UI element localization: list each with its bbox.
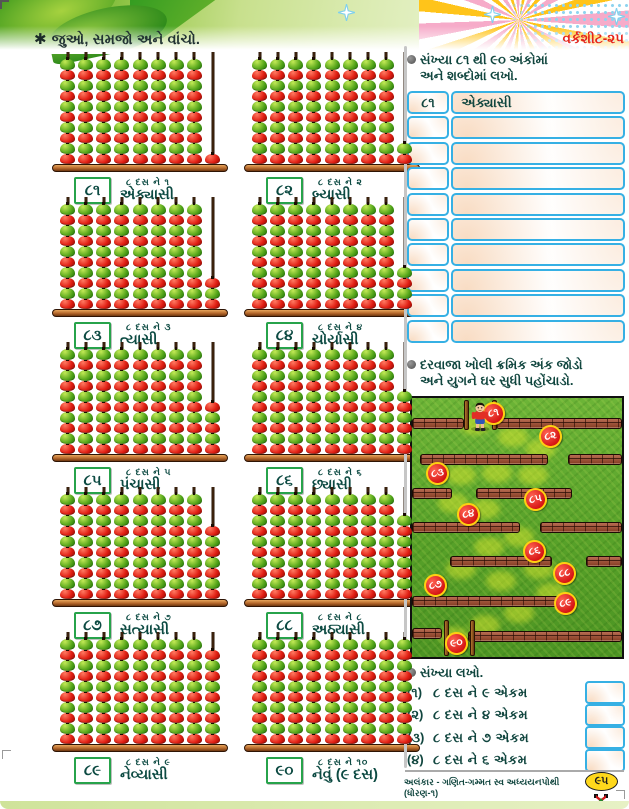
apple-bead-icon [288,360,303,371]
apple-bead-icon [379,80,394,91]
panel-numeral-box: ૮૭ [74,612,111,639]
apple-bead-icon [151,660,166,671]
apple-bead-icon [288,246,303,257]
apple-bead-icon [361,671,376,682]
apple-bead-icon [288,547,303,558]
apple-bead-icon [133,381,148,392]
apple-bead-icon [114,639,129,650]
apple-bead-icon [379,225,394,236]
table-word-cell[interactable] [451,218,625,241]
apple-bead-icon [288,101,303,112]
apple-bead-icon [169,681,184,692]
apple-bead-icon [270,370,285,381]
apple-bead-icon [133,671,148,682]
apple-bead-icon [96,650,111,661]
abacus-rod-tens [169,349,184,454]
apple-bead-icon [151,494,166,505]
apple-bead-icon [60,59,75,70]
apple-bead-icon [60,515,75,526]
abacus-rod-units [205,59,220,164]
table-number-cell[interactable] [407,193,449,216]
apple-bead-icon [114,278,129,289]
apple-bead-icon [205,723,220,734]
apple-bead-icon [288,122,303,133]
apple-bead-icon [60,589,75,600]
table-word-cell[interactable] [451,167,625,190]
apple-bead-icon [343,391,358,402]
apple-bead-icon [114,370,129,381]
apple-bead-icon [288,59,303,70]
apple-bead-icon [325,589,340,600]
apple-bead-icon [78,122,93,133]
apple-bead-icon [288,723,303,734]
apple-bead-icon [325,515,340,526]
abacus-base [52,599,228,607]
apple-bead-icon [187,204,202,215]
table-number-cell[interactable] [407,269,449,292]
apple-bead-icon [397,734,412,745]
apple-bead-icon [151,122,166,133]
apple-bead-icon [361,360,376,371]
apple-bead-icon [288,370,303,381]
apple-bead-icon [270,59,285,70]
apple-bead-icon [270,246,285,257]
apple-bead-icon [343,702,358,713]
apple-bead-icon [96,423,111,434]
apple-bead-icon [78,578,93,589]
apple-bead-icon [397,444,412,455]
table-number-cell[interactable] [407,167,449,190]
panel-numeral-box: ૮૩ [74,322,111,349]
apple-bead-icon [133,692,148,703]
bullet-icon [407,360,416,369]
apple-bead-icon [60,370,75,381]
apple-bead-icon [133,299,148,310]
write-numbers-items: (૧)૮ દસ ને ૯ એકમ(૨)૮ દસ ને ૪ એકમ(૩)૮ દસ … [407,682,625,772]
apple-bead-icon [151,391,166,402]
abacus-rod-tens [60,639,75,744]
panel-numeral-box: ૮૬ [266,467,303,494]
apple-bead-icon [60,639,75,650]
apple-bead-icon [379,143,394,154]
apple-bead-icon [60,494,75,505]
apple-bead-icon [270,267,285,278]
brick-wall [540,522,622,533]
apple-bead-icon [78,204,93,215]
apple-bead-icon [187,402,202,413]
brick-wall [468,631,622,642]
apple-bead-icon [96,671,111,682]
apple-bead-icon [379,568,394,579]
apple-bead-icon [187,505,202,516]
apple-bead-icon [78,702,93,713]
apple-bead-icon [96,70,111,81]
abacus-rod-tens [133,494,148,599]
abacus-beads [252,494,412,599]
write-number-item: (૩)૮ દસ ને ૭ એકમ [407,727,625,748]
abacus-rod-tens [270,59,285,164]
apple-bead-icon [325,215,340,226]
table-word-cell[interactable] [451,294,625,317]
panel-numeral-box: ૯૦ [266,757,303,784]
apple-bead-icon [187,692,202,703]
apple-bead-icon [78,671,93,682]
apple-bead-icon [343,122,358,133]
prompt-line: સંખ્યા લખો. [420,665,483,680]
apple-bead-icon [252,112,267,123]
apple-bead-icon [343,70,358,81]
apple-bead-icon [114,143,129,154]
apple-bead-icon [306,360,321,371]
abacus-base [244,164,420,172]
table-word-cell[interactable] [451,243,625,266]
apple-bead-icon [169,154,184,165]
apple-bead-icon [96,723,111,734]
apple-bead-icon [114,257,129,268]
apple-bead-icon [252,215,267,226]
apple-bead-icon [270,236,285,247]
abacus-beads [60,349,220,454]
apple-bead-icon [60,225,75,236]
apple-bead-icon [133,122,148,133]
apple-bead-icon [306,80,321,91]
apple-bead-icon [169,402,184,413]
abacus-beads [60,639,220,744]
apple-bead-icon [306,713,321,724]
apple-bead-icon [78,133,93,144]
apple-bead-icon [187,713,202,724]
apple-bead-icon [151,360,166,371]
apple-bead-icon [270,91,285,102]
apple-bead-icon [361,80,376,91]
apple-bead-icon [306,267,321,278]
apple-bead-icon [379,589,394,600]
apple-bead-icon [343,59,358,70]
apple-bead-icon [379,505,394,516]
apple-bead-icon [379,204,394,215]
apple-bead-icon [114,225,129,236]
apple-bead-icon [60,734,75,745]
apple-bead-icon [133,568,148,579]
apple-bead-icon [306,288,321,299]
apple-bead-icon [114,101,129,112]
apple-bead-icon [60,547,75,558]
apple-bead-icon [133,143,148,154]
apple-bead-icon [114,505,129,516]
answer-box[interactable] [585,681,625,704]
table-word-cell: એક્યાસી [451,91,625,114]
abacus-panel: ૮૭૮ દસ ને ૭સત્યાસી [30,492,222,637]
apple-bead-icon [252,723,267,734]
apple-bead-icon [325,536,340,547]
apple-bead-icon [133,59,148,70]
apple-bead-icon [114,133,129,144]
apple-bead-icon [325,660,340,671]
maze-board[interactable]: ૮૧૮૨૮૩૮૫૮૪૮૬૮૮૮૭૮૯૯૦ [410,396,624,659]
apple-bead-icon [270,215,285,226]
apple-bead-icon [169,349,184,360]
apple-bead-icon [96,204,111,215]
abacus-beads [60,494,220,599]
apple-bead-icon [187,515,202,526]
abacus-rod-tens [379,639,394,744]
maze-prompt: દરવાજા ખોલી ક્રમિક અંક જોડો અને યુગને ઘર… [407,357,627,390]
abacus-beads [252,639,412,744]
apple-bead-icon [306,494,321,505]
apple-bead-icon [270,225,285,236]
apple-bead-icon [114,557,129,568]
apple-bead-icon [169,246,184,257]
table-number-cell[interactable] [407,320,449,343]
apple-bead-icon [78,299,93,310]
abacus-rod-tens [114,494,129,599]
apple-bead-icon [169,536,184,547]
apple-bead-icon [343,526,358,537]
apple-bead-icon [343,557,358,568]
apple-bead-icon [252,526,267,537]
apple-bead-icon [270,122,285,133]
abacus-rod-units [205,639,220,744]
table-number-cell: ૮૧ [407,91,449,114]
apple-bead-icon [133,349,148,360]
apple-bead-icon [60,349,75,360]
apple-bead-icon [288,288,303,299]
apple-bead-icon [397,299,412,310]
apple-bead-icon [306,143,321,154]
apple-bead-icon [270,349,285,360]
apple-bead-icon [114,671,129,682]
apple-bead-icon [270,568,285,579]
apple-bead-icon [379,59,394,70]
apple-bead-icon [78,723,93,734]
apple-bead-icon [361,557,376,568]
apple-bead-icon [361,101,376,112]
apple-bead-icon [325,381,340,392]
apple-bead-icon [325,246,340,257]
apple-bead-icon [205,526,220,537]
apple-bead-icon [187,547,202,558]
panel-label: ૯૦૮ દસ ને ૧૦નેવું (૯ દસ) [266,757,378,784]
apple-bead-icon [361,391,376,402]
apple-bead-icon [96,360,111,371]
apple-bead-icon [343,154,358,165]
apple-bead-icon [252,236,267,247]
apple-bead-icon [78,515,93,526]
apple-bead-icon [325,568,340,579]
table-number-cell[interactable] [407,116,449,139]
apple-bead-icon [78,547,93,558]
answer-box[interactable] [585,704,625,727]
apple-bead-icon [78,70,93,81]
table-word-cell[interactable] [451,269,625,292]
apple-bead-icon [288,91,303,102]
apple-bead-icon [270,112,285,123]
maze-path [486,571,516,591]
table-number-cell[interactable] [407,142,449,165]
apple-bead-icon [288,257,303,268]
apple-bead-icon [379,267,394,278]
table-number-cell[interactable] [407,218,449,241]
apple-bead-icon [96,692,111,703]
apple-bead-icon [361,154,376,165]
apple-bead-icon [361,433,376,444]
apple-bead-icon [187,80,202,91]
apple-bead-icon [151,143,166,154]
apple-bead-icon [270,713,285,724]
table-number-cell[interactable] [407,294,449,317]
apple-bead-icon [343,370,358,381]
apple-bead-icon [114,515,129,526]
apple-bead-icon [270,681,285,692]
table-row [407,243,625,266]
apple-bead-icon [252,734,267,745]
answer-box[interactable] [585,726,625,749]
abacus-rod-tens [187,639,202,744]
apple-bead-icon [270,288,285,299]
apple-bead-icon [306,412,321,423]
apple-bead-icon [379,246,394,257]
table-word-cell[interactable] [451,116,625,139]
apple-bead-icon [60,299,75,310]
panel-numeral-box: ૮૮ [266,612,303,639]
apple-bead-icon [343,412,358,423]
apple-bead-icon [133,288,148,299]
apple-bead-icon [60,681,75,692]
apple-bead-icon [325,112,340,123]
apple-bead-icon [343,444,358,455]
apple-bead-icon [151,671,166,682]
abacus-rod-tens [114,349,129,454]
prompt-line: અને શબ્દોમાં લખો. [407,68,627,84]
apple-bead-icon [288,639,303,650]
apple-bead-icon [78,91,93,102]
apple-bead-icon [78,505,93,516]
apple-bead-icon [270,692,285,703]
apple-bead-icon [114,112,129,123]
apple-bead-icon [288,204,303,215]
apple-bead-icon [187,681,202,692]
apple-bead-icon [187,723,202,734]
apple-bead-icon [361,112,376,123]
apple-bead-icon [96,444,111,455]
write-numbers-prompt: સંખ્યા લખો. [407,665,627,681]
apple-bead-icon [169,423,184,434]
abacus-rod-tens [151,639,166,744]
apple-bead-icon [205,557,220,568]
apple-bead-icon [151,526,166,537]
apple-bead-icon [60,713,75,724]
abacus-rod-tens [343,494,358,599]
table-word-cell[interactable] [451,142,625,165]
apple-bead-icon [133,444,148,455]
apple-bead-icon [379,215,394,226]
apple-bead-icon [306,402,321,413]
apple-bead-icon [361,402,376,413]
apple-bead-icon [60,91,75,102]
apple-bead-icon [60,257,75,268]
brick-wall [412,418,464,429]
apple-bead-icon [133,505,148,516]
apple-bead-icon [288,278,303,289]
apple-bead-icon [133,267,148,278]
abacus-rod-tens [325,204,340,309]
abacus-rod-tens [96,639,111,744]
apple-bead-icon [205,713,220,724]
table-word-cell[interactable] [451,193,625,216]
table-row [407,320,625,343]
apple-bead-icon [114,713,129,724]
apple-bead-icon [325,80,340,91]
apple-bead-icon [60,702,75,713]
apple-bead-icon [187,444,202,455]
apple-bead-icon [325,526,340,537]
apple-bead-icon [114,402,129,413]
apple-bead-icon [306,278,321,289]
apple-bead-icon [397,578,412,589]
apple-bead-icon [151,112,166,123]
abacus-rod-tens [361,59,376,164]
table-word-cell[interactable] [451,320,625,343]
table-number-cell[interactable] [407,243,449,266]
apple-bead-icon [288,412,303,423]
apple-bead-icon [306,723,321,734]
apple-bead-icon [252,412,267,423]
apple-bead-icon [96,215,111,226]
apple-bead-icon [343,246,358,257]
apple-bead-icon [78,246,93,257]
abacus-rod-tens [288,204,303,309]
apple-bead-icon [78,257,93,268]
prompt-line: દરવાજા ખોલી ક્રમિક અંક જોડો [420,357,583,372]
apple-bead-icon [114,122,129,133]
apple-bead-icon [60,236,75,247]
answer-box[interactable] [585,749,625,772]
apple-bead-icon [306,660,321,671]
apple-bead-icon [270,557,285,568]
apple-bead-icon [361,681,376,692]
page-title: ✱જુઓ, સમજો અને વાંચો. [34,30,200,48]
abacus-rod-tens [78,494,93,599]
asterisk-icon: ✱ [34,31,47,48]
apple-bead-icon [270,734,285,745]
table-row [407,167,625,190]
abacus-panels: ૮૧૮ દસ ને ૧એક્યાસી૮૨૮ દસ ને ૨બ્યાસી૮૩૮ દ… [30,57,414,782]
apple-bead-icon [151,578,166,589]
panel-text: ૮ દસ ને ૧એક્યાસી [120,177,174,204]
apple-bead-icon [96,734,111,745]
apple-bead-icon [169,70,184,81]
apple-bead-icon [96,225,111,236]
apple-bead-icon [325,154,340,165]
apple-bead-icon [379,370,394,381]
apple-bead-icon [252,360,267,371]
write-words-prompt: સંખ્યા ૮૧ થી ૯૦ અંકોમાં અને શબ્દોમાં લખો… [407,52,627,85]
apple-bead-icon [96,299,111,310]
prompt-line: અને યુગને ઘર સુધી પહોંચાડો. [407,373,627,389]
apple-bead-icon [151,80,166,91]
apple-bead-icon [133,713,148,724]
apple-bead-icon [379,288,394,299]
panel-text: ૮ દસ ને ૪ચોર્યાસી [312,322,363,349]
apple-bead-icon [270,391,285,402]
apple-bead-icon [169,515,184,526]
apple-bead-icon [133,204,148,215]
panel-label: ૮૯૮ દસ ને ૯નેવ્યાસી [74,757,171,784]
apple-bead-icon [306,444,321,455]
crop-mark [2,750,11,759]
apple-bead-icon [343,671,358,682]
apple-bead-icon [306,578,321,589]
